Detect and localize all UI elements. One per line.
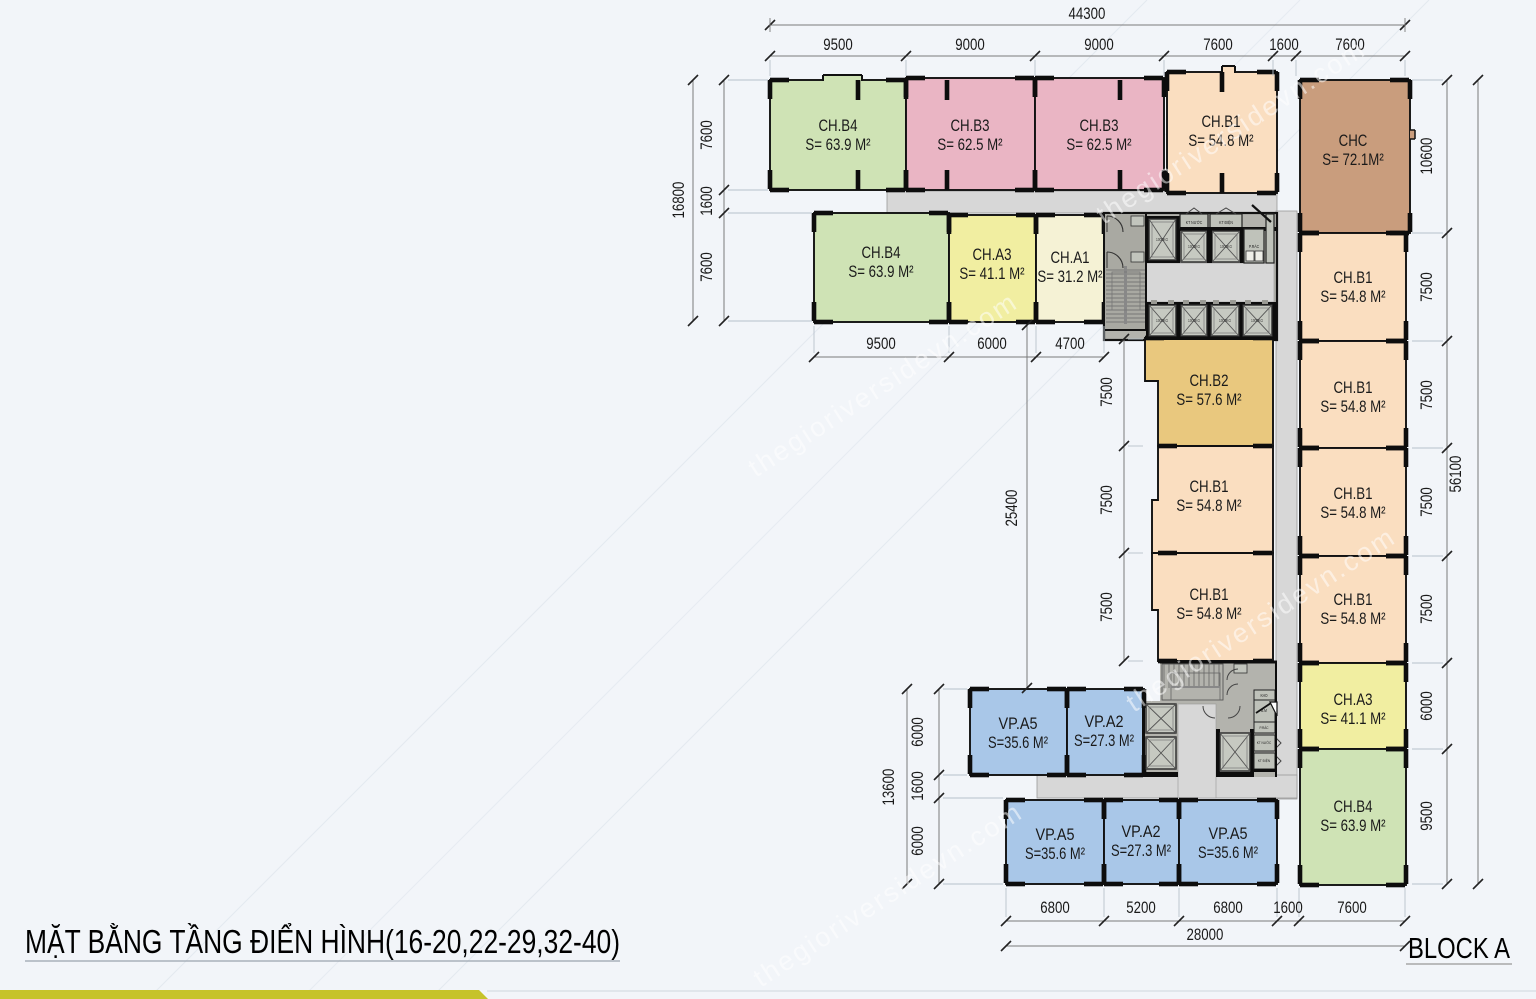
svg-text:S= 57.6 M²: S= 57.6 M²: [1176, 390, 1241, 409]
svg-text:S=35.6 M²: S=35.6 M²: [988, 733, 1048, 752]
svg-text:KHO: KHO: [1260, 693, 1268, 698]
svg-text:S= 63.9 M²: S= 63.9 M²: [1320, 816, 1385, 835]
svg-text:CH.B1: CH.B1: [1333, 268, 1372, 287]
svg-text:VP.A5: VP.A5: [1208, 824, 1247, 843]
svg-text:S=35.6 M²: S=35.6 M²: [1198, 843, 1258, 862]
svg-text:1000KG: 1000KG: [1156, 318, 1168, 323]
svg-text:7500: 7500: [1097, 377, 1116, 407]
svg-text:KT NƯỚC: KT NƯỚC: [1186, 219, 1203, 225]
svg-text:28000: 28000: [1187, 925, 1224, 944]
svg-text:KT NƯỚC: KT NƯỚC: [1257, 740, 1272, 745]
svg-text:P.RÁC: P.RÁC: [1259, 725, 1268, 730]
svg-text:S= 54.8 M²: S= 54.8 M²: [1176, 496, 1241, 515]
svg-text:7600: 7600: [1203, 35, 1233, 54]
svg-text:CH.B1: CH.B1: [1189, 477, 1228, 496]
svg-text:CH.A3: CH.A3: [1333, 690, 1372, 709]
svg-text:7600: 7600: [697, 120, 716, 150]
svg-text:7500: 7500: [1417, 272, 1436, 302]
svg-text:CH.B1: CH.B1: [1333, 484, 1372, 503]
svg-text:5200: 5200: [1126, 898, 1156, 917]
svg-text:9000: 9000: [1084, 35, 1114, 54]
svg-text:S= 41.1 M²: S= 41.1 M²: [1320, 709, 1385, 728]
svg-text:S=27.3 M²: S=27.3 M²: [1111, 841, 1171, 860]
svg-text:1000KG: 1000KG: [1156, 237, 1168, 242]
svg-text:1600: 1600: [697, 186, 716, 216]
svg-text:MẶT BẰNG TẦNG ĐIỂN HÌNH(16-20,: MẶT BẰNG TẦNG ĐIỂN HÌNH(16-20,22-29,32-4…: [25, 923, 620, 960]
svg-text:CH.B4: CH.B4: [818, 116, 857, 135]
svg-text:CH.A1: CH.A1: [1050, 248, 1089, 267]
svg-text:S=35.6 M²: S=35.6 M²: [1025, 844, 1085, 863]
svg-text:CH.B4: CH.B4: [861, 243, 900, 262]
svg-text:7500: 7500: [1417, 380, 1436, 410]
svg-text:6000: 6000: [908, 717, 927, 747]
svg-text:9500: 9500: [866, 334, 896, 353]
svg-text:13600: 13600: [879, 769, 898, 806]
svg-text:16800: 16800: [669, 182, 688, 219]
svg-text:4700: 4700: [1055, 334, 1085, 353]
svg-text:7500: 7500: [1097, 592, 1116, 622]
svg-text:CH.B3: CH.B3: [1079, 116, 1118, 135]
svg-text:S= 41.1 M²: S= 41.1 M²: [959, 264, 1024, 283]
svg-text:7500: 7500: [1097, 485, 1116, 515]
svg-text:1000KG: 1000KG: [1188, 318, 1200, 323]
svg-text:S= 54.8 M²: S= 54.8 M²: [1320, 287, 1385, 306]
svg-text:6000: 6000: [1417, 691, 1436, 721]
svg-text:7500: 7500: [1417, 487, 1436, 517]
svg-text:7600: 7600: [697, 252, 716, 282]
svg-text:S= 54.8 M²: S= 54.8 M²: [1320, 609, 1385, 628]
svg-text:9500: 9500: [1417, 801, 1436, 831]
svg-text:9500: 9500: [823, 35, 853, 54]
svg-text:CH.B2: CH.B2: [1189, 371, 1228, 390]
svg-text:1000KG: 1000KG: [1251, 318, 1263, 323]
svg-text:P.RÁC: P.RÁC: [1249, 243, 1260, 249]
svg-text:10600: 10600: [1417, 138, 1436, 175]
svg-text:KT ĐIỆN: KT ĐIỆN: [1258, 758, 1270, 763]
svg-text:VP.A5: VP.A5: [998, 714, 1037, 733]
svg-text:56100: 56100: [1446, 456, 1465, 493]
svg-text:CH.A3: CH.A3: [972, 245, 1011, 264]
svg-text:S=27.3 M²: S=27.3 M²: [1074, 731, 1134, 750]
svg-text:1600: 1600: [908, 771, 927, 801]
svg-text:S= 62.5 M²: S= 62.5 M²: [1066, 135, 1131, 154]
svg-text:9000: 9000: [955, 35, 985, 54]
svg-text:CH.B1: CH.B1: [1333, 378, 1372, 397]
svg-text:6800: 6800: [1213, 898, 1243, 917]
svg-text:1600: 1600: [1269, 35, 1299, 54]
svg-text:S= 54.8 M²: S= 54.8 M²: [1320, 503, 1385, 522]
svg-text:S= 63.9 M²: S= 63.9 M²: [848, 262, 913, 281]
svg-text:S= 54.8 M²: S= 54.8 M²: [1320, 397, 1385, 416]
svg-text:6000: 6000: [908, 826, 927, 856]
svg-text:CH.B4: CH.B4: [1333, 797, 1372, 816]
svg-text:1000KG: 1000KG: [1219, 318, 1231, 323]
svg-text:VP.A2: VP.A2: [1121, 822, 1160, 841]
svg-text:VP.A5: VP.A5: [1035, 825, 1074, 844]
svg-text:7500: 7500: [1417, 594, 1436, 624]
svg-text:1000KG: 1000KG: [1188, 244, 1200, 249]
svg-text:S= 63.9 M²: S= 63.9 M²: [805, 135, 870, 154]
svg-text:CH.B1: CH.B1: [1189, 585, 1228, 604]
svg-text:1600: 1600: [1273, 898, 1303, 917]
svg-text:CH.B3: CH.B3: [950, 116, 989, 135]
svg-text:CH.B1: CH.B1: [1333, 590, 1372, 609]
svg-text:44300: 44300: [1069, 4, 1106, 23]
svg-text:S= 72.1M²: S= 72.1M²: [1322, 150, 1384, 169]
svg-text:KT ĐIỆN: KT ĐIỆN: [1219, 218, 1233, 225]
svg-text:6800: 6800: [1040, 898, 1070, 917]
svg-text:S= 62.5 M²: S= 62.5 M²: [937, 135, 1002, 154]
svg-text:CHC: CHC: [1339, 131, 1368, 150]
svg-text:S= 31.2 M²: S= 31.2 M²: [1037, 267, 1102, 286]
svg-text:25400: 25400: [1002, 490, 1021, 527]
svg-text:VP.A2: VP.A2: [1084, 712, 1123, 731]
svg-text:1000KG: 1000KG: [1220, 244, 1232, 249]
svg-text:BLOCK A: BLOCK A: [1408, 933, 1511, 965]
svg-text:7600: 7600: [1337, 898, 1367, 917]
